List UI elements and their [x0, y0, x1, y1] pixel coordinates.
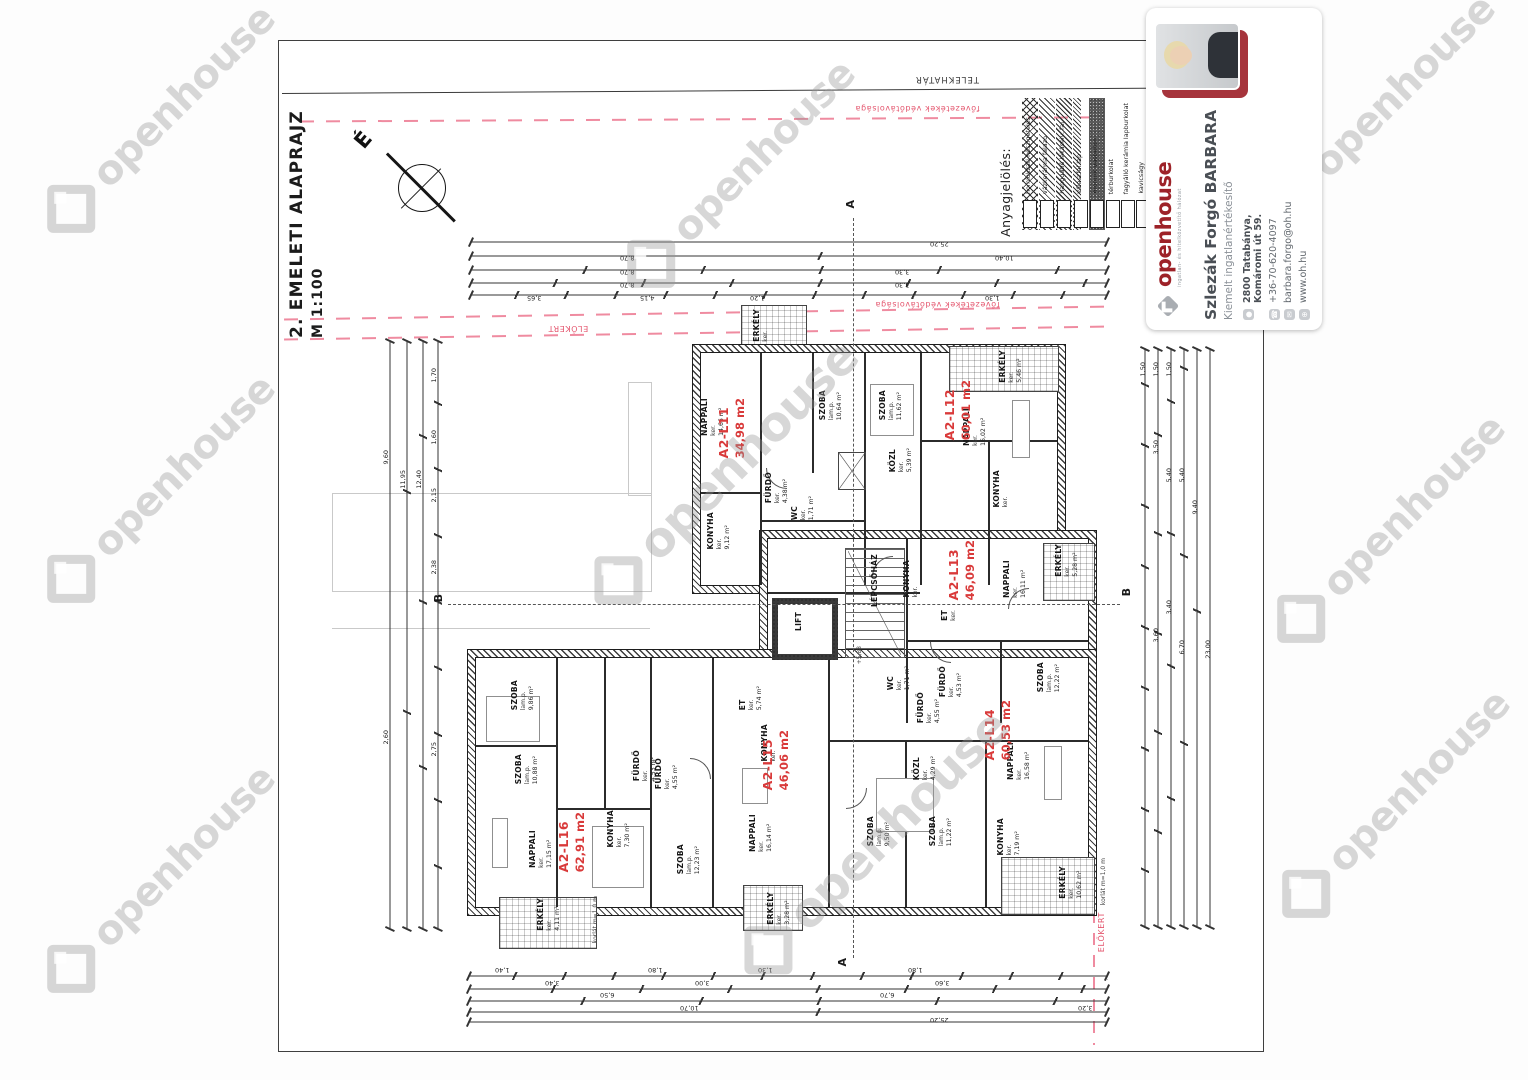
page-title: 2. EMELETI ALAPRAJZ — [286, 108, 309, 338]
agent-business-card: openhouse ingatlan- és hitelközvetítő há… — [1146, 8, 1322, 330]
dimension-chain — [470, 252, 1108, 260]
wall-partition — [812, 353, 814, 473]
address-line2: Komáromi út 59. — [1253, 214, 1264, 303]
dimension-chain — [419, 340, 427, 930]
shaft-box — [838, 452, 866, 490]
dimension-chain — [386, 340, 394, 930]
furniture-bed — [876, 778, 934, 832]
dimension-chain — [1154, 348, 1162, 928]
dimension-chain — [1167, 348, 1175, 928]
wall-partition — [906, 539, 908, 723]
balcony — [744, 886, 802, 930]
wall-partition — [760, 520, 865, 522]
wall-partition — [650, 658, 652, 907]
ghost-outline — [628, 382, 652, 496]
dimension-chain — [468, 1018, 1108, 1026]
wall-partition — [1000, 640, 1002, 723]
dimension-chain — [468, 997, 1108, 1005]
watermark: openhouse — [1272, 680, 1520, 928]
brand-logo: openhouse ingatlan- és hitelközvetítő há… — [1154, 162, 1183, 320]
agent-website[interactable]: www.oh.hu — [1298, 251, 1309, 303]
openhouse-logo-icon — [1277, 595, 1325, 643]
balcony — [1002, 858, 1094, 914]
dimension-chain — [470, 291, 1108, 299]
lift-shaft — [772, 598, 838, 660]
front-garden-label: ELŐKERT — [1097, 912, 1106, 952]
openhouse-logo-icon — [47, 945, 95, 993]
dimension-chain — [470, 279, 1108, 287]
utility-setback-label: fővezetékek védőtávolsága — [855, 104, 980, 113]
agent-photo — [1154, 22, 1240, 90]
agent-role: Kiemelt ingatlanértékesítő — [1223, 181, 1235, 320]
web-row[interactable]: ⊕ www.oh.hu — [1298, 202, 1310, 321]
wall-partition — [985, 740, 987, 907]
balcony — [500, 898, 596, 948]
balcony — [1044, 544, 1094, 600]
openhouse-logo-icon — [47, 185, 95, 233]
ghost-outline-line — [332, 628, 650, 629]
wall-partition — [920, 353, 922, 585]
openhouse-house-icon — [1154, 292, 1182, 320]
location-icon: ● — [1243, 309, 1254, 320]
portrait-body — [1208, 32, 1240, 78]
drawing-title-block: 2. EMELETI ALAPRAJZ M 1:100 — [286, 108, 328, 338]
furniture-bed — [486, 696, 540, 742]
wall-partition — [828, 658, 830, 907]
dimension-chain — [470, 238, 1108, 246]
wall-partition — [828, 740, 1088, 742]
watermark: openhouse — [37, 0, 285, 243]
section-line-a — [853, 218, 854, 958]
wall-partition — [556, 808, 650, 810]
watermark: openhouse — [37, 365, 285, 613]
agent-name: Szlezák Forgó BARBARA — [1202, 110, 1220, 320]
wall-partition — [701, 492, 761, 494]
address-line1: 2800 Tatabánya, — [1242, 214, 1253, 303]
watermark-text: openhouse — [83, 756, 284, 957]
brand-name: openhouse — [1154, 162, 1175, 287]
furniture-bed — [870, 384, 914, 436]
dimension-chain — [403, 340, 411, 930]
furniture-sofa — [492, 818, 508, 868]
dimension-chain — [1193, 348, 1201, 928]
wall-partition — [476, 745, 556, 747]
agent-contacts: ● 2800 Tatabánya, Komáromi út 59. ☎ +36-… — [1242, 202, 1310, 321]
wall-partition — [988, 440, 990, 585]
dimension-chain — [470, 266, 1108, 274]
dimension-chain — [1206, 348, 1214, 928]
dimension-chain — [468, 972, 1108, 980]
dimension-chain — [468, 1008, 1108, 1016]
portrait-face — [1170, 46, 1192, 65]
watermark-text: openhouse — [1303, 0, 1504, 187]
furniture-bed — [592, 826, 644, 888]
legend-heading: Anyagjelölés: — [998, 148, 1015, 237]
phone-row[interactable]: ☎ +36-70-620-4097 — [1268, 202, 1280, 321]
ghost-outline — [332, 493, 652, 592]
dimension-chain — [468, 985, 1108, 993]
wall-partition — [712, 658, 714, 907]
web-icon: ⊕ — [1299, 309, 1310, 320]
wall-partition — [604, 658, 606, 808]
brand-tagline: ingatlan- és hitelközvetítő hálózat — [1177, 162, 1183, 287]
watermark-text: openhouse — [1313, 406, 1514, 607]
phone-icon: ☎ — [1269, 309, 1280, 320]
watermark-text: openhouse — [83, 366, 284, 567]
agent-portrait — [1154, 22, 1240, 90]
balcony — [742, 306, 806, 347]
furniture-table — [742, 768, 768, 804]
front-garden-label: ELŐKERT — [548, 324, 588, 333]
dimension-chain — [434, 340, 442, 930]
address-row: ● 2800 Tatabánya, Komáromi út 59. — [1242, 202, 1265, 321]
section-line-b — [448, 604, 1120, 605]
email-icon: ✉ — [1284, 309, 1295, 320]
furniture-sofa — [1012, 400, 1030, 458]
watermark: openhouse — [37, 755, 285, 1003]
watermark: openhouse — [1267, 405, 1515, 653]
dimension-chain — [1180, 348, 1188, 928]
agent-email[interactable]: barbara.forgo@oh.hu — [1283, 202, 1294, 304]
furniture-sofa — [1044, 746, 1062, 800]
utility-setback-label: fővezetékek védőtávolsága — [875, 300, 1000, 309]
openhouse-logo-icon — [1282, 870, 1330, 918]
property-boundary-label: TELEKHATÁR — [915, 74, 979, 84]
dimension-chain — [1141, 348, 1149, 928]
wall-partition — [556, 658, 558, 907]
watermark-text: openhouse — [83, 0, 284, 197]
openhouse-logo-icon — [47, 555, 95, 603]
drawing-scale: M 1:100 — [309, 108, 328, 338]
email-row[interactable]: ✉ barbara.forgo@oh.hu — [1283, 202, 1295, 321]
north-arrow-icon — [398, 164, 446, 212]
agent-phone[interactable]: +36-70-620-4097 — [1268, 218, 1279, 303]
wall-partition — [760, 353, 762, 585]
balcony — [950, 347, 1058, 391]
watermark-text: openhouse — [1318, 681, 1519, 882]
